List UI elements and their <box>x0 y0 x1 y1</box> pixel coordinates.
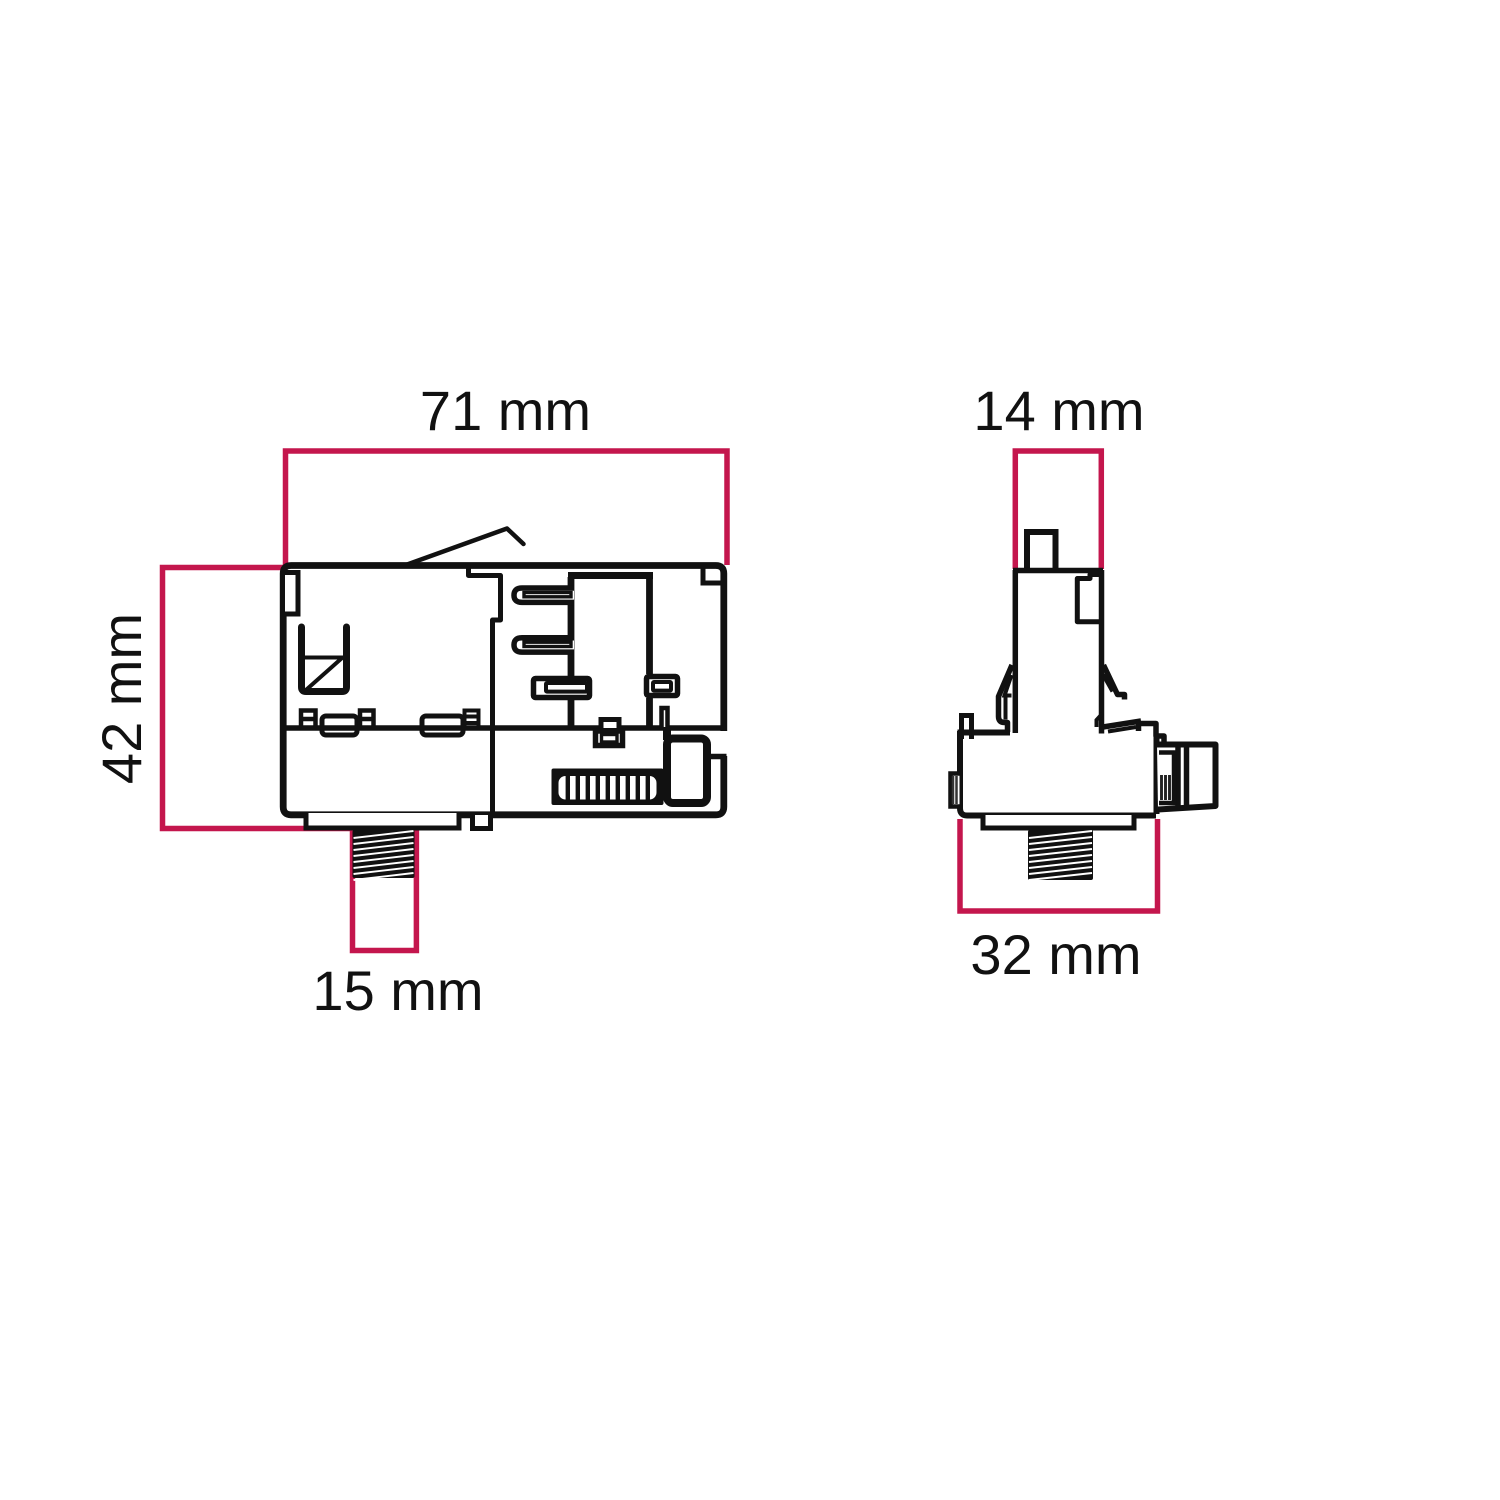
svg-text:42 mm: 42 mm <box>90 613 153 784</box>
svg-text:32 mm: 32 mm <box>970 923 1141 986</box>
svg-text:14 mm: 14 mm <box>973 379 1144 442</box>
svg-text:71 mm: 71 mm <box>420 379 591 442</box>
svg-text:15 mm: 15 mm <box>312 959 483 1022</box>
